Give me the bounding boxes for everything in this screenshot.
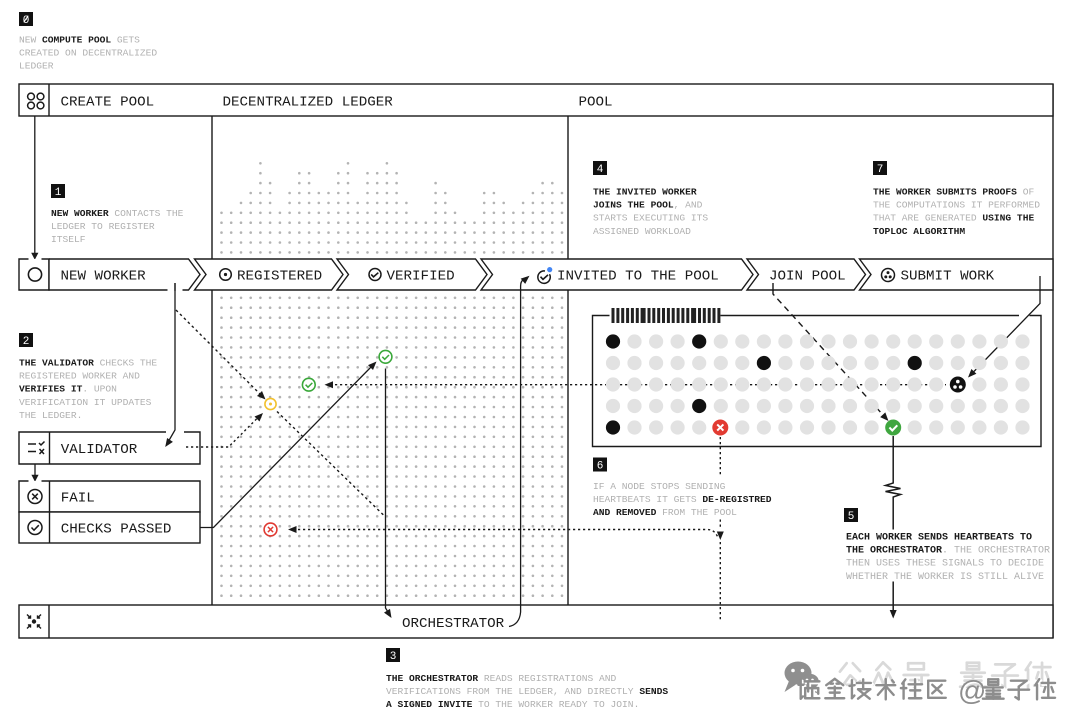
svg-text:THE VALIDATOR CHECKS THE: THE VALIDATOR CHECKS THE	[19, 358, 157, 369]
svg-text:NEW WORKER CONTACTS THE: NEW WORKER CONTACTS THE	[51, 208, 184, 219]
svg-text:CHECKS PASSED: CHECKS PASSED	[61, 522, 172, 538]
svg-text:SUBMIT WORK: SUBMIT WORK	[901, 269, 995, 285]
svg-text:THE WORKER SUBMITS PROOFS OF: THE WORKER SUBMITS PROOFS OF	[873, 187, 1034, 198]
svg-text:CREATED ON DECENTRALIZED: CREATED ON DECENTRALIZED	[19, 48, 157, 59]
svg-text:A SIGNED INVITE TO THE WORKER: A SIGNED INVITE TO THE WORKER READY TO J…	[386, 699, 639, 710]
svg-text:EACH WORKER SENDS HEARTBEATS T: EACH WORKER SENDS HEARTBEATS TO	[846, 533, 1032, 544]
svg-text:THEN USES THESE SIGNALS TO DEC: THEN USES THESE SIGNALS TO DECIDE	[846, 559, 1044, 570]
svg-text:CREATE POOL: CREATE POOL	[61, 95, 155, 111]
svg-text:REGISTERED: REGISTERED	[237, 269, 322, 285]
svg-text:THE COMPUTATIONS IT PERFORMED: THE COMPUTATIONS IT PERFORMED	[873, 200, 1040, 211]
svg-text:VERIFIES IT. UPON: VERIFIES IT. UPON	[19, 384, 117, 395]
svg-text:VERIFICATIONS FROM THE LEDGER,: VERIFICATIONS FROM THE LEDGER, AND DIREC…	[386, 686, 668, 697]
svg-text:6: 6	[597, 461, 604, 473]
svg-text:NEW COMPUTE POOL GETS: NEW COMPUTE POOL GETS	[19, 35, 140, 46]
svg-text:THE LEDGER.: THE LEDGER.	[19, 410, 82, 421]
svg-text:AND REMOVED FROM THE POOL: AND REMOVED FROM THE POOL	[593, 507, 737, 518]
svg-text:DECENTRALIZED LEDGER: DECENTRALIZED LEDGER	[223, 95, 394, 111]
svg-text:1: 1	[55, 187, 62, 199]
svg-text:7: 7	[877, 164, 884, 176]
svg-text:FAIL: FAIL	[61, 491, 95, 507]
svg-text:THAT ARE GENERATED USING THE: THAT ARE GENERATED USING THE	[873, 213, 1034, 224]
svg-text:WHETHER THE WORKER IS STILL AL: WHETHER THE WORKER IS STILL ALIVE	[846, 572, 1044, 583]
svg-text:5: 5	[848, 511, 855, 523]
svg-text:VERIFICATION IT UPDATES: VERIFICATION IT UPDATES	[19, 397, 152, 408]
svg-text:4: 4	[597, 164, 604, 176]
svg-text:INVITED TO THE POOL: INVITED TO THE POOL	[557, 269, 719, 285]
svg-text:POOL: POOL	[579, 95, 613, 111]
svg-text:THE ORCHESTRATOR READS REGISTR: THE ORCHESTRATOR READS REGISTRATIONS AND	[386, 673, 617, 684]
svg-text:0: 0	[23, 15, 30, 27]
svg-text:THE INVITED WORKER: THE INVITED WORKER	[593, 187, 697, 198]
svg-text:VERIFIED: VERIFIED	[387, 269, 455, 285]
svg-text:@: @	[958, 675, 986, 706]
svg-text:2: 2	[23, 336, 30, 348]
svg-text:NEW WORKER: NEW WORKER	[61, 269, 147, 285]
svg-text:ORCHESTRATOR: ORCHESTRATOR	[402, 616, 505, 632]
svg-text:HEARTBEATS IT GETS DE-REGISTRE: HEARTBEATS IT GETS DE-REGISTRED	[593, 494, 772, 505]
svg-text:JOINS THE POOL, AND: JOINS THE POOL, AND	[593, 200, 703, 211]
svg-text:IF A NODE STOPS SENDING: IF A NODE STOPS SENDING	[593, 481, 726, 492]
svg-text:TOPLOC ALGORITHM: TOPLOC ALGORITHM	[873, 226, 965, 237]
svg-text:THE ORCHESTRATOR. THE ORCHESTR: THE ORCHESTRATOR. THE ORCHESTRATOR	[846, 546, 1050, 557]
svg-text:VALIDATOR: VALIDATOR	[61, 442, 138, 458]
svg-text:ASSIGNED WORKLOAD: ASSIGNED WORKLOAD	[593, 226, 691, 237]
svg-text:LEDGER TO REGISTER: LEDGER TO REGISTER	[51, 221, 155, 232]
svg-text:STARTS EXECUTING ITS: STARTS EXECUTING ITS	[593, 213, 708, 224]
svg-text:LEDGER: LEDGER	[19, 61, 54, 72]
svg-text:ITSELF: ITSELF	[51, 234, 86, 245]
svg-text:REGISTERED WORKER AND: REGISTERED WORKER AND	[19, 371, 140, 382]
svg-text:3: 3	[390, 651, 397, 663]
svg-text:JOIN POOL: JOIN POOL	[769, 269, 846, 285]
